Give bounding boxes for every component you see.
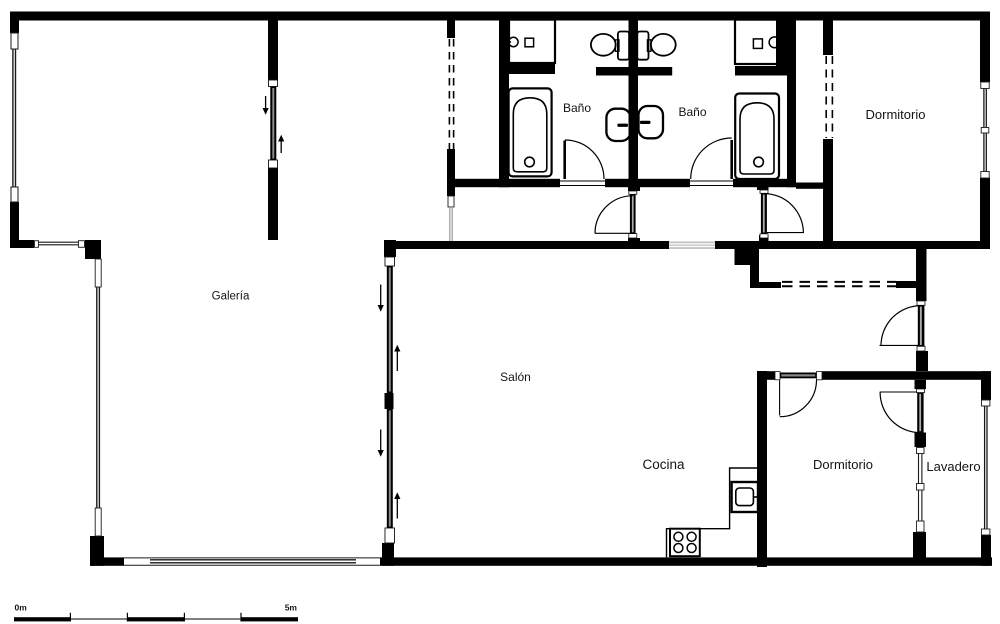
svg-text:Baño: Baño bbox=[678, 105, 706, 119]
svg-text:Dormitorio: Dormitorio bbox=[866, 107, 926, 122]
svg-text:Baño: Baño bbox=[563, 101, 591, 115]
svg-text:Lavadero: Lavadero bbox=[926, 459, 980, 474]
svg-text:Galería: Galería bbox=[212, 290, 250, 302]
svg-text:Cocina: Cocina bbox=[642, 457, 685, 472]
svg-text:Dormitorio: Dormitorio bbox=[813, 457, 873, 472]
svg-text:Salón: Salón bbox=[500, 370, 531, 384]
svg-text:5m: 5m bbox=[285, 603, 298, 613]
svg-text:0m: 0m bbox=[15, 603, 28, 613]
